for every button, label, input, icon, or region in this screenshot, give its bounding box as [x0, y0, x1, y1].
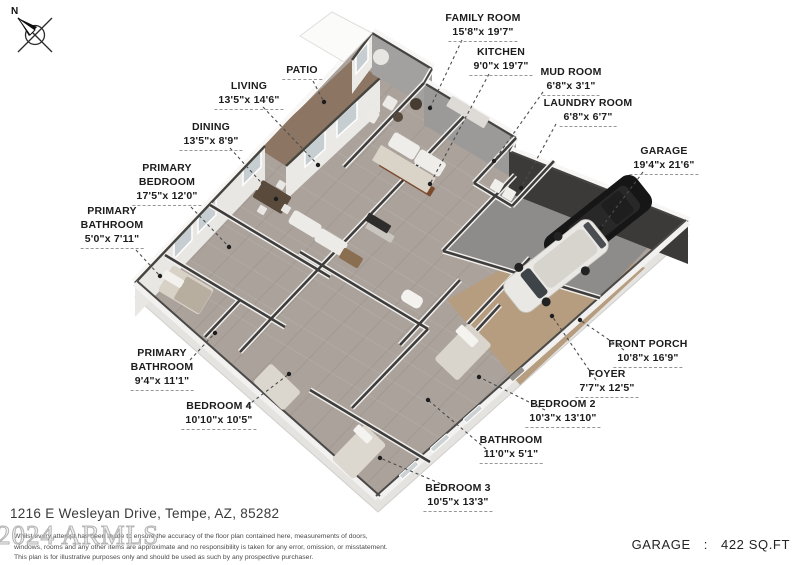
room-name: KITCHEN [469, 46, 532, 60]
floorplan-3d-render [0, 0, 800, 565]
floorplan-image: N [0, 0, 800, 565]
room-label-laundry-room: LAUNDRY ROOM6'8"x 6'7" [544, 97, 633, 127]
room-name: PATIO [282, 64, 322, 80]
room-dims: 5'0"x 7'11" [81, 233, 144, 249]
room-name: MUD ROOM [540, 66, 601, 80]
room-label-bedroom-2: BEDROOM 210'3"x 13'10" [525, 398, 600, 428]
garage-sqft-note: GARAGE : 422 SQ.FT [632, 537, 790, 552]
room-label-kitchen: KITCHEN9'0"x 19'7" [469, 46, 532, 76]
room-dims: 6'8"x 6'7" [559, 111, 616, 127]
room-label-bedroom-3: BEDROOM 310'5"x 13'3" [423, 482, 492, 512]
room-label-front-porch: FRONT PORCH10'8"x 16'9" [608, 338, 687, 368]
room-label-mud-room: MUD ROOM6'8"x 3'1" [540, 66, 601, 96]
room-label-family-room: FAMILY ROOM15'8"x 19'7" [445, 12, 520, 42]
disclaimer-line: Whilst every attempt has been made to en… [14, 532, 388, 543]
room-name: BEDROOM 3 [423, 482, 492, 496]
room-name: BEDROOM [132, 176, 201, 190]
room-name: BEDROOM 2 [525, 398, 600, 412]
room-dims: 17'5"x 12'0" [132, 190, 201, 206]
room-dims: 13'5"x 8'9" [179, 135, 242, 151]
room-name: LAUNDRY ROOM [544, 97, 633, 111]
room-name: FAMILY ROOM [445, 12, 520, 26]
room-name: FOYER [575, 368, 638, 382]
room-dims: 13'5"x 14'6" [214, 94, 283, 110]
room-name: BATHROOM [81, 219, 144, 233]
room-dims: 19'4"x 21'6" [629, 159, 698, 175]
garage-sqft-separator: : [704, 537, 708, 552]
room-label-dining: DINING13'5"x 8'9" [179, 121, 242, 151]
room-name: PRIMARY [131, 347, 194, 361]
compass-north-label: N [11, 6, 18, 17]
room-name: GARAGE [629, 145, 698, 159]
room-label-foyer: FOYER7'7"x 12'5" [575, 368, 638, 398]
room-dims: 9'0"x 19'7" [469, 60, 532, 76]
room-label-primary-bathroom-1: PRIMARYBATHROOM5'0"x 7'11" [81, 205, 144, 249]
room-dims: 10'3"x 13'10" [525, 412, 600, 428]
disclaimer-text: Whilst every attempt has been made to en… [14, 532, 388, 564]
room-label-primary-bathroom-2: PRIMARYBATHROOM9'4"x 11'1" [131, 347, 194, 391]
property-address: 1216 E Wesleyan Drive, Tempe, AZ, 85282 [10, 506, 279, 521]
room-dims: 7'7"x 12'5" [575, 382, 638, 398]
room-dims: 10'5"x 13'3" [423, 496, 492, 512]
garage-sqft-value: 422 SQ.FT [721, 537, 790, 552]
room-dims: 15'8"x 19'7" [448, 26, 517, 42]
room-dims: 10'10"x 10'5" [181, 414, 256, 430]
disclaimer-line: windows, rooms and any other items are a… [14, 543, 388, 554]
garage-sqft-label: GARAGE [632, 537, 691, 552]
room-name: PRIMARY [132, 162, 201, 176]
room-dims: 10'8"x 16'9" [613, 352, 682, 368]
room-label-primary-bedroom: PRIMARYBEDROOM17'5"x 12'0" [132, 162, 201, 206]
room-label-patio: PATIO [282, 64, 322, 80]
room-label-living: LIVING13'5"x 14'6" [214, 80, 283, 110]
room-name: BATHROOM [480, 434, 543, 448]
room-name: LIVING [214, 80, 283, 94]
room-dims: 6'8"x 3'1" [542, 80, 599, 96]
room-label-garage: GARAGE19'4"x 21'6" [629, 145, 698, 175]
room-name: FRONT PORCH [608, 338, 687, 352]
disclaimer-line: This plan is for illustrative purposes o… [14, 553, 388, 564]
room-name: DINING [179, 121, 242, 135]
room-name: BATHROOM [131, 361, 194, 375]
room-name: PRIMARY [81, 205, 144, 219]
room-label-bedroom-4: BEDROOM 410'10"x 10'5" [181, 400, 256, 430]
room-label-bathroom: BATHROOM11'0"x 5'1" [480, 434, 543, 464]
room-dims: 11'0"x 5'1" [480, 448, 543, 464]
room-dims: 9'4"x 11'1" [131, 375, 194, 391]
room-name: BEDROOM 4 [181, 400, 256, 414]
compass: N [8, 6, 62, 64]
